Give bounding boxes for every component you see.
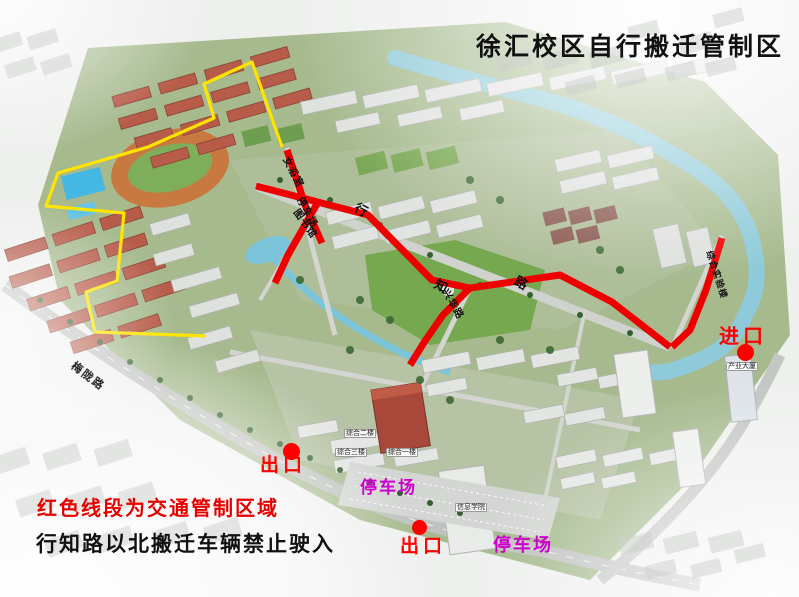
industry-tower-label: 产业大厦: [726, 362, 758, 371]
notice-line-2: 行知路以北搬迁车辆禁止驶入: [36, 534, 335, 555]
complex-1-label: 综合一楼: [386, 448, 418, 457]
campus-map-screenshot: 徐汇校区自行搬迁管制区 女浴室 停车场 图书馆 兴华路 综合实验楼 行 知 路 …: [0, 0, 799, 597]
exit-west-dot: [283, 443, 300, 460]
exit-south-dot: [412, 520, 427, 535]
page-title: 徐汇校区自行搬迁管制区: [476, 34, 784, 59]
parking-west-label: 停车场: [360, 480, 417, 497]
exit-south-label: 出口: [400, 537, 446, 556]
entrance-east-label: 进口: [719, 326, 767, 346]
info-college-label: 信息学院: [455, 503, 487, 512]
exit-west-label: 出口: [260, 456, 306, 475]
parking-east-label: 停车场: [493, 537, 553, 555]
notice-line-1: 红色线段为交通管制区域: [37, 498, 279, 518]
complex-2-label: 综合二楼: [344, 429, 376, 438]
entrance-east-dot: [737, 344, 754, 361]
complex-3-label: 综合三楼: [335, 448, 367, 457]
